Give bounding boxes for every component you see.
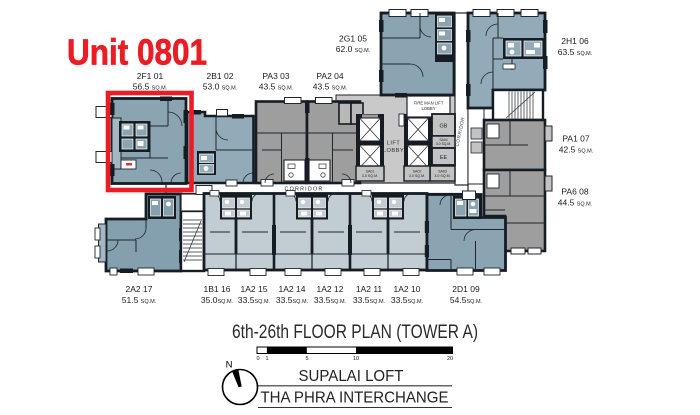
svg-text:6th-26th FLOOR PLAN (TOWER A): 6th-26th FLOOR PLAN (TOWER A): [232, 321, 478, 343]
svg-text:EE: EE: [440, 155, 448, 161]
svg-text:1A2 15: 1A2 15: [241, 284, 268, 294]
svg-text:20: 20: [447, 356, 453, 362]
svg-text:3.0 SQ.M.: 3.0 SQ.M.: [409, 174, 425, 178]
svg-text:5: 5: [305, 356, 308, 362]
svg-text:3.0 SQ.M.: 3.0 SQ.M.: [436, 142, 451, 146]
svg-text:2B1 02: 2B1 02: [207, 71, 234, 81]
svg-text:1A2 12: 1A2 12: [317, 284, 344, 294]
svg-text:PA3 03: PA3 03: [262, 71, 290, 81]
svg-text:CORRIDOR: CORRIDOR: [285, 187, 324, 193]
svg-text:2F1 01: 2F1 01: [137, 71, 164, 81]
svg-text:2H1 06: 2H1 06: [561, 36, 589, 46]
svg-text:Unit 0801: Unit 0801: [67, 32, 207, 73]
svg-text:LIFT: LIFT: [387, 141, 401, 147]
svg-text:THA PHRA INTERCHANGE: THA PHRA INTERCHANGE: [261, 390, 449, 407]
svg-text:2G1 05: 2G1 05: [339, 34, 367, 44]
svg-text:3.0 SQ.M.: 3.0 SQ.M.: [362, 174, 378, 178]
svg-text:PA2 04: PA2 04: [316, 71, 344, 81]
svg-text:LOBBY: LOBBY: [383, 148, 404, 154]
svg-text:1B1 16: 1B1 16: [204, 284, 231, 294]
svg-text:SA02: SA02: [413, 170, 422, 174]
svg-text:GB: GB: [440, 124, 448, 130]
svg-text:1A2 14: 1A2 14: [279, 284, 306, 294]
svg-text:2A2 17: 2A2 17: [126, 284, 153, 294]
svg-text:10: 10: [353, 356, 359, 362]
svg-text:1: 1: [265, 356, 268, 362]
svg-text:PA6 08: PA6 08: [561, 187, 589, 197]
svg-text:2D1 09: 2D1 09: [452, 284, 480, 294]
svg-text:3.0 SQ.M.: 3.0 SQ.M.: [434, 174, 450, 178]
svg-text:SUPALAI LOFT: SUPALAI LOFT: [299, 368, 405, 385]
svg-text:PA1 07: PA1 07: [562, 134, 590, 144]
svg-text:SA03: SA03: [438, 170, 447, 174]
svg-text:1A2 11: 1A2 11: [356, 284, 383, 294]
svg-text:N: N: [226, 360, 233, 371]
svg-text:FIRE MAN LIFT: FIRE MAN LIFT: [414, 101, 444, 106]
svg-text:LOBBY: LOBBY: [422, 106, 436, 111]
svg-text:SA01: SA01: [366, 170, 375, 174]
svg-text:1A2 10: 1A2 10: [394, 284, 421, 294]
svg-text:0: 0: [256, 356, 259, 362]
